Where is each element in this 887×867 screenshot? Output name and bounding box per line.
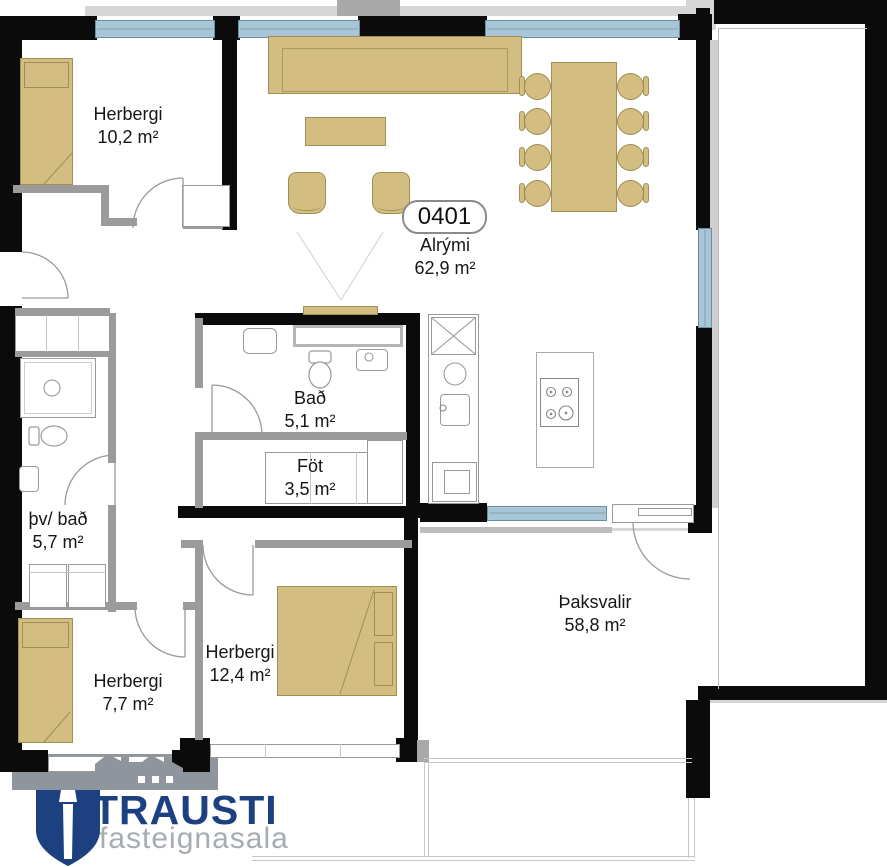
room-area: 58,8 m²: [515, 614, 675, 637]
laundry-cabinets: [15, 315, 110, 352]
chair-back: [519, 147, 525, 167]
chair-back: [519, 76, 525, 96]
coffee-table: [305, 117, 386, 146]
chair-back: [519, 111, 525, 131]
washbasin: [356, 349, 388, 371]
trausti-logo: [12, 742, 222, 867]
wall-segment: [696, 8, 710, 230]
shield-tie-knot: [59, 790, 77, 802]
floor-plan: Herbergi 10,2 m² 0401 Alrými 62,9 m² Bað…: [0, 0, 887, 867]
wall-segment: [865, 24, 887, 688]
unit-number-badge: 0401: [402, 200, 487, 234]
toilet-tank: [309, 351, 331, 363]
door-arc: [22, 252, 68, 298]
wall-segment: [406, 313, 420, 518]
terrace-rail: [424, 762, 692, 763]
bathtub: [293, 325, 403, 347]
pillow: [22, 622, 69, 648]
small-sink: [19, 466, 39, 492]
house-window-dot: [152, 776, 159, 783]
pillow: [374, 642, 393, 686]
top-sill-block: [337, 0, 400, 16]
tv-bench: [303, 306, 378, 315]
door-arc: [203, 545, 253, 595]
room-label-thv-bad: þv/ bað 5,7 m²: [0, 508, 116, 554]
terrace-rail: [424, 762, 425, 857]
room-label-fot: Föt 3,5 m²: [240, 455, 380, 501]
room-area: 10,2 m²: [48, 126, 208, 149]
partition-wall: [255, 540, 412, 548]
terrace-rail: [424, 758, 692, 759]
wall-segment: [686, 700, 710, 798]
wall-segment: [714, 0, 887, 24]
window: [487, 506, 607, 521]
room-name: þv/ bað: [0, 508, 116, 531]
tv-sight-line: [297, 232, 341, 300]
wall-segment: [420, 503, 487, 522]
cabinet-divider: [78, 315, 79, 352]
wall-segment: [178, 506, 412, 518]
room-name: Herbergi: [160, 641, 320, 664]
house-icon: [95, 754, 183, 772]
toilet-icon: [309, 362, 331, 388]
window-mullion: [340, 744, 341, 758]
partition-wall: [203, 432, 407, 440]
armchair-seat: [377, 202, 405, 211]
terrace-door-leaf: [638, 508, 692, 516]
toilet-icon: [41, 426, 67, 446]
shower-inner: [24, 362, 92, 414]
window: [95, 20, 215, 38]
terrace-rail: [252, 860, 695, 861]
logo-band: [12, 772, 218, 790]
partition-wall: [195, 318, 203, 388]
wall-segment: [696, 326, 712, 533]
dining-chair: [524, 73, 551, 100]
room-area: 3,5 m²: [240, 478, 380, 501]
dining-chair: [524, 144, 551, 171]
chair-back: [643, 111, 649, 131]
terrace-rail: [688, 798, 689, 858]
partition-wall: [101, 218, 137, 226]
window: [698, 228, 712, 328]
pillow: [24, 62, 69, 88]
dining-chair: [617, 144, 644, 171]
room-name: Þaksvalir: [515, 591, 675, 614]
dining-chair: [524, 108, 551, 135]
armchair-seat: [293, 202, 321, 211]
washer: [29, 564, 67, 608]
terrace-edge: [718, 28, 867, 689]
partition-wall: [181, 540, 203, 548]
stove: [540, 378, 579, 427]
dryer: [68, 564, 106, 608]
hall-cabinet: [182, 185, 230, 227]
window-mullion: [265, 744, 266, 758]
house-window-dot: [138, 776, 145, 783]
kitchen-sink: [440, 394, 470, 426]
room-name: Föt: [240, 455, 380, 478]
chair-back: [643, 147, 649, 167]
toilet-tank: [29, 427, 39, 445]
room-area: 7,7 m²: [48, 693, 208, 716]
room-area: 5,7 m²: [0, 531, 116, 554]
wall-segment: [404, 518, 418, 760]
room-name: Herbergi: [48, 670, 208, 693]
unit-number: 0401: [418, 203, 471, 230]
cabinet-divider: [46, 315, 47, 352]
room-label-herbergi-3: Herbergi 7,7 m²: [48, 670, 208, 716]
terrace-rail: [252, 856, 695, 857]
pillow: [374, 592, 393, 636]
terrace-edge: [710, 700, 887, 703]
washer-line: [29, 572, 106, 573]
dining-chair: [617, 73, 644, 100]
room-label-thaksvalir: Þaksvalir 58,8 m²: [515, 591, 675, 637]
room-label-alrymi: Alrými 62,9 m²: [365, 234, 525, 280]
kitchen-fridge: [431, 317, 476, 355]
partition-wall: [13, 185, 107, 193]
terrace-rail: [694, 798, 695, 858]
dining-table: [551, 62, 617, 212]
room-name: Alrými: [365, 234, 525, 257]
dining-chair: [617, 108, 644, 135]
sofa-seat: [282, 48, 508, 92]
room-name: Herbergi: [48, 103, 208, 126]
shield-tie-tail: [63, 804, 73, 859]
terrace-sill-2: [612, 528, 690, 531]
chair-back: [519, 183, 525, 203]
room-area: 5,1 m²: [240, 410, 380, 433]
wall-segment: [0, 16, 22, 252]
partition-wall: [195, 432, 203, 508]
chair-back: [643, 76, 649, 96]
dining-chair: [617, 180, 644, 207]
terrace-sill: [420, 527, 612, 533]
door-arc: [133, 178, 183, 228]
kitchen-cabinet-inner: [444, 470, 470, 494]
terrace-rail: [428, 762, 429, 857]
room-area: 62,9 m²: [365, 257, 525, 280]
chair-back: [643, 183, 649, 203]
dining-chair: [524, 180, 551, 207]
room-name: Bað: [240, 387, 380, 410]
room-label-herbergi-1: Herbergi 10,2 m²: [48, 103, 208, 149]
house-window-dot: [166, 776, 173, 783]
window-frame: [210, 744, 400, 758]
bath-cabinet: [243, 328, 277, 354]
room-label-bad: Bað 5,1 m²: [240, 387, 380, 433]
